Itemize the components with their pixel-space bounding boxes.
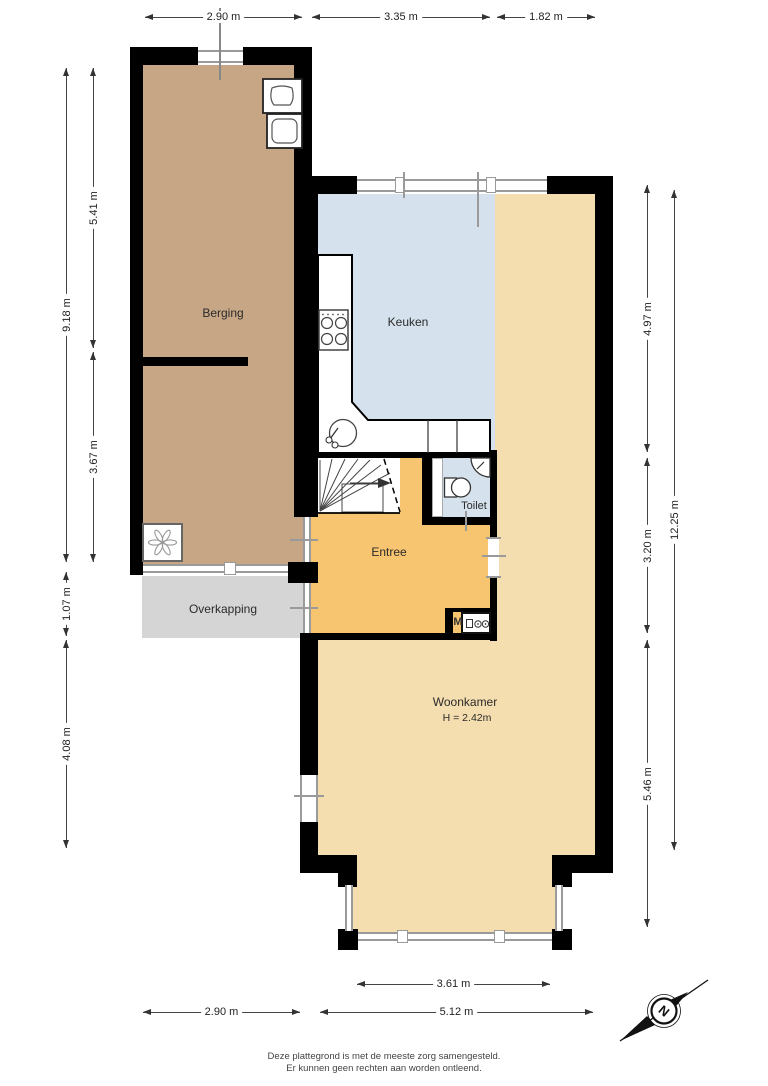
doorway-jamb [486,537,501,539]
dim-right-entree: 3.20 m [647,458,648,633]
wall-berging-right-upper [294,47,312,180]
toilet-door-tick [465,511,467,531]
bay-window-front [358,932,552,941]
wall-bay-post-right [552,929,572,950]
dim-left-overkapping: 1.07 m [66,572,67,636]
woonkamer-left-window [300,775,318,822]
keuken-window-tick [477,172,479,227]
toilet-door [432,458,443,517]
keuken-window [357,179,547,192]
bay-window-mullion [494,930,505,943]
dim-left-berging-total: 9.18 m [66,68,67,562]
berging-rear-glass-wall [143,564,288,573]
keuken-window-tick [403,172,405,198]
dim-bottom-woonkamer: 5.12 m [320,1012,593,1013]
dim-right-keuken: 4.97 m [647,185,648,452]
wall-corner-post-left [338,855,357,887]
wall-keuken-top-left [312,176,357,194]
dim-top-berging: 2.90 m [145,17,302,18]
dim-left-berging-front: 5.41 m [93,68,94,348]
bay-floor [352,858,560,934]
wall-entree-bottom [303,633,497,640]
woonkamer-window-tick [294,795,324,797]
compass-north-label: N [656,1002,673,1020]
bay-window-left [345,885,353,931]
keuken-label: Keuken [388,315,429,329]
bay-window-right [555,885,563,931]
dim-left-woonkamer: 4.08 m [66,640,67,848]
compass-rose-icon: N [600,958,730,1063]
dim-bottom-bay: 3.61 m [357,984,550,985]
floor-plan: Berging Keuken Toilet Entree Overkapping… [0,0,768,1086]
wall-woonkamer-left-upper [300,633,318,775]
wall-bay-post-left [338,929,358,950]
wall-main-right [595,176,613,858]
doorway-tick [482,555,506,557]
entree-glass-tick [290,607,318,609]
dim-bottom-berging: 2.90 m [143,1012,300,1013]
wall-keuken-left [294,176,318,517]
wall-toilet-bottom [422,517,497,525]
wall-mbox-left [445,608,453,640]
wall-woonkamer-left-lower [300,822,318,855]
wall-berging-partition [143,357,248,366]
dim-top-keuken: 3.35 m [312,17,490,18]
wall-entree-pier [288,562,318,583]
woonkamer-floor [318,640,595,858]
dim-top-open-area: 1.82 m [497,17,595,18]
doorway-jamb [486,576,501,578]
wall-berging-top-left [130,47,198,65]
footer-disclaimer-line2: Er kunnen geen rechten aan worden ontlee… [0,1063,768,1074]
dim-right-woonkamer: 5.46 m [647,640,648,927]
toilet-label: Toilet [461,500,487,512]
woonkamer-label: Woonkamer [433,695,497,709]
wall-corner-post-right [552,855,572,887]
ceiling-height-label: H = 2.42m [443,712,492,724]
meter-cupboard-label: M [453,616,462,628]
dim-left-berging-rear: 3.67 m [93,352,94,562]
wall-toilet-left [422,455,432,525]
entree-glass-tick [290,539,318,541]
entree-woonkamer-doorway [488,537,499,578]
wall-keuken-bottom [294,450,497,458]
berging-label: Berging [202,306,243,320]
wall-berging-left [130,47,143,575]
open-area-floor [495,194,595,640]
bay-window-mullion [397,930,408,943]
entree-label: Entree [371,545,406,559]
footer-disclaimer-line1: Deze plattegrond is met de meeste zorg s… [0,1051,768,1062]
overkapping-label: Overkapping [189,602,257,616]
keuken-window-mullion [486,177,496,193]
dim-right-total: 12.25 m [674,190,675,850]
berging-glass-mullion [224,562,236,575]
